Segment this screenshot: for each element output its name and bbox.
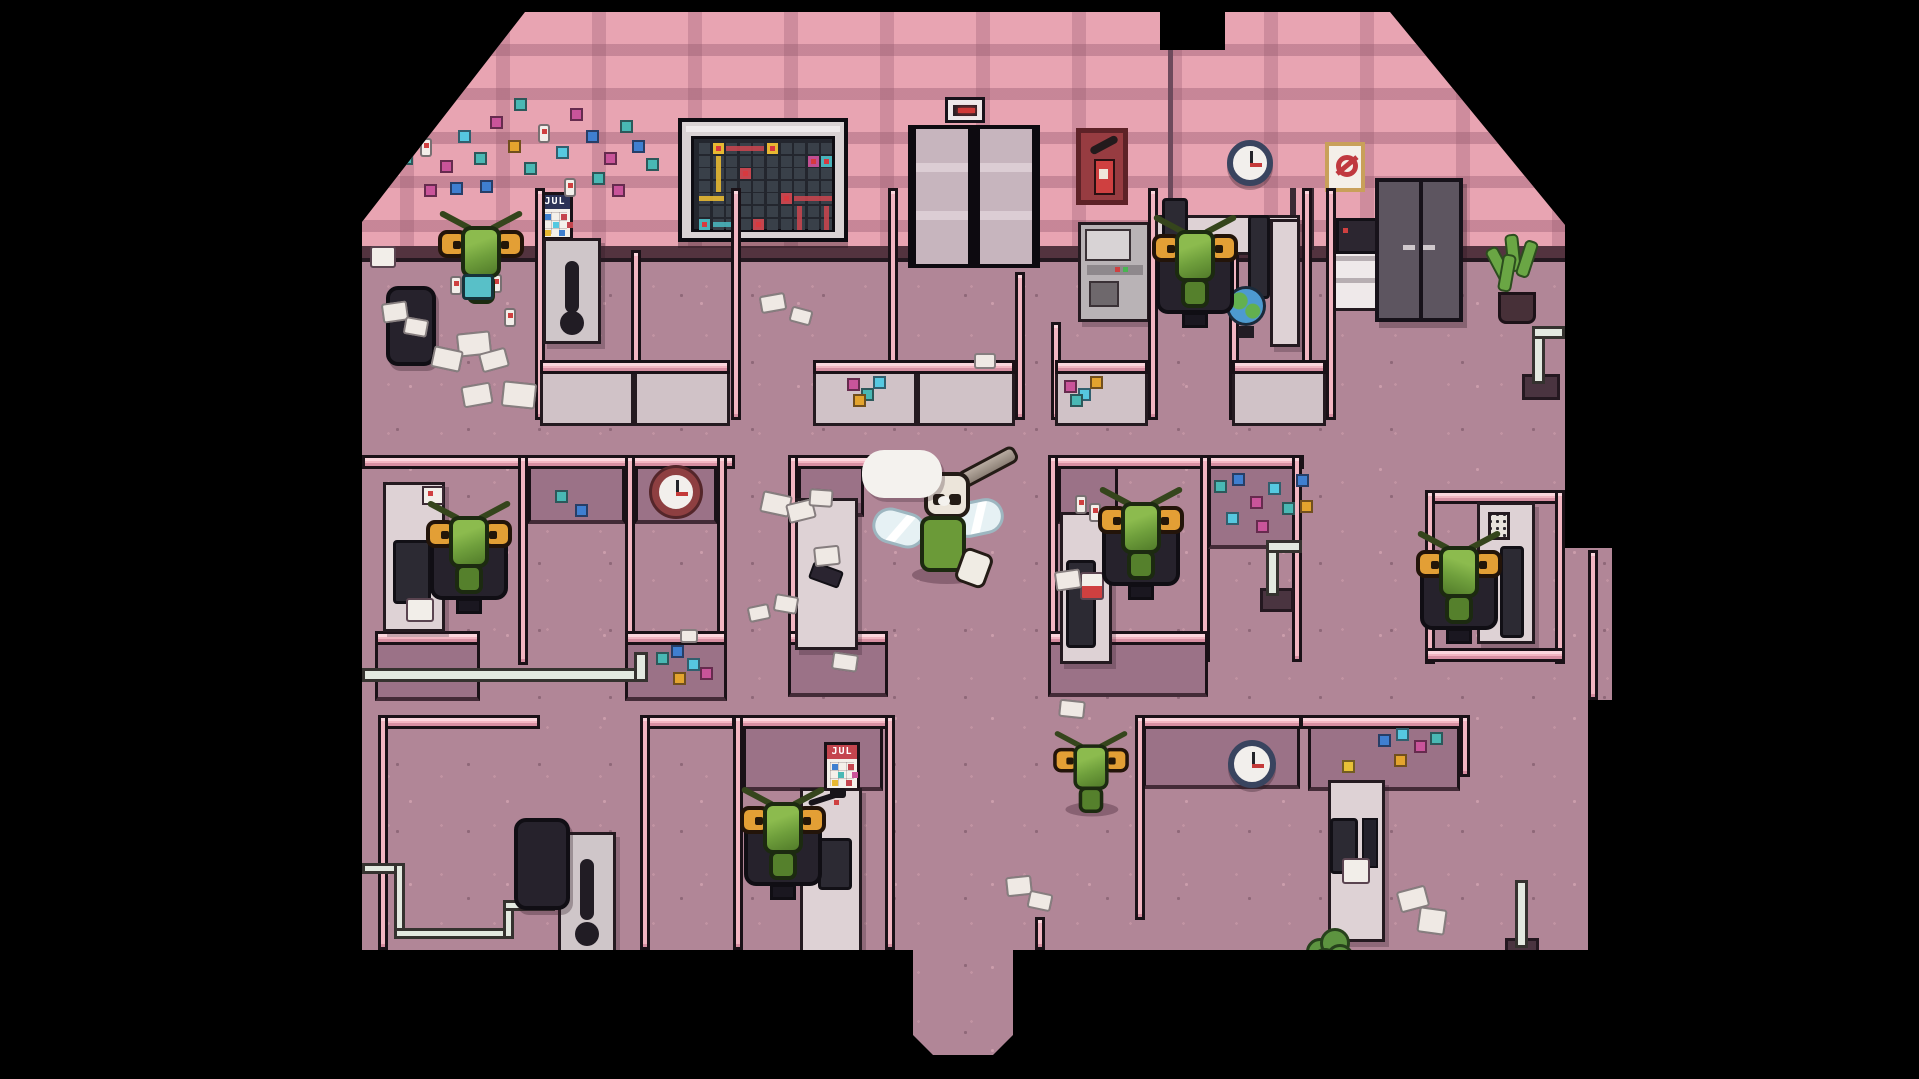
fly-worker[interactable] [426,504,512,600]
crumpled-paper [1054,568,1083,591]
sticky-note [612,184,625,197]
crumpled-paper [1058,699,1086,720]
copier-led-red [1115,267,1120,272]
task-board[interactable] [678,118,848,242]
desk-divider [914,374,920,426]
sticky-note [556,146,569,159]
fly-head [461,226,501,278]
board-marker [699,219,710,230]
board-cell [808,181,819,192]
sticky-note [853,394,866,407]
board-cell [821,168,832,179]
cubicle-desk-wall [1055,360,1148,374]
sticky-note [400,152,413,165]
sticky-note [1064,380,1077,393]
wall-clock-top [1227,140,1273,186]
floor-bush [1306,926,1350,972]
game-viewport: JUL [0,0,1919,1079]
sticky-note [1226,512,1239,525]
elevator[interactable] [908,125,1040,268]
board-cell [781,156,792,167]
sticky-note [632,140,645,153]
sticky-note [504,308,516,327]
sticky-note [1090,376,1103,389]
board-cell [767,168,778,179]
board-cell [713,206,724,217]
sticky-note [1430,732,1443,745]
board-cell [808,143,819,154]
floor-pipe-elbow [1266,540,1302,553]
crumpled-paper [831,651,859,672]
sticky-note [514,98,527,111]
board-cell [808,206,819,217]
board-path [726,146,764,151]
board-cell [794,156,805,167]
sticky-note [1214,480,1227,493]
wall-clock-bottom [1228,740,1276,788]
sticky-note [474,152,487,165]
board-cell [740,219,751,230]
copier-lid [1085,229,1131,261]
potted-plant [1486,232,1542,324]
cubicle-wall-face [1143,729,1300,789]
sticky-note [1300,500,1313,513]
sticky-note [575,504,588,517]
office-chair[interactable] [514,818,570,910]
elevator-door-left[interactable] [912,125,972,268]
sticky-note [440,160,453,173]
cubicle-wall [1135,715,1145,920]
cubicle-wall [1425,648,1565,662]
monitor [1500,546,1524,638]
board-cell [821,181,832,192]
cubicle-wall [640,715,650,950]
sticky-note [646,158,659,171]
sticky-note [700,667,713,680]
board-cell [767,193,778,204]
cubicle-wall-stub [1035,917,1045,950]
coffee-mug[interactable] [1342,858,1370,884]
floor-pipe [362,668,646,682]
board-cell [753,181,764,192]
board-cell [767,219,778,230]
sticky-note [1070,394,1083,407]
board-cell [753,168,764,179]
wall-clock-mid [652,468,700,516]
board-cell [794,181,805,192]
cubicle-wall [375,631,480,645]
plant-pot [1498,292,1536,324]
sticky-note [1342,760,1355,773]
cubicle-wall [1326,188,1336,420]
sticky-note [671,645,684,658]
board-cell [699,143,710,154]
cabinet-handle [1423,245,1435,250]
board-cell [794,168,805,179]
crumpled-paper [813,545,841,568]
board-cell [767,181,778,192]
fly-worker[interactable] [1098,490,1184,586]
no-smoking-sign [1325,142,1365,192]
fly-worker[interactable] [740,790,826,886]
board-cell [740,156,751,167]
fly-worker-walking[interactable] [1053,734,1129,818]
cabinet-seam [1419,182,1423,318]
board-cell [794,143,805,154]
sticky-note [420,138,432,157]
cubicle-wall [1135,715,1302,729]
calendar-mark [553,222,559,228]
cubicle-wall [378,715,388,950]
sticky-note [620,120,633,133]
sticky-note [555,490,568,503]
sticky-note [592,172,605,185]
sticky-note [424,184,437,197]
board-cell [753,156,764,167]
crumpled-paper [501,380,538,409]
calendar-month: JUL [827,745,857,759]
sticky-note [1268,482,1281,495]
board-cell [767,156,778,167]
calendar-mark [559,230,565,236]
board-cell [726,156,737,167]
board-cell [740,193,751,204]
board-marker [781,193,792,204]
calendar-mark [545,230,551,236]
fire-extinguisher-poster [1076,128,1128,205]
board-path [797,206,802,230]
sticky-note [1250,496,1263,509]
board-cell [781,181,792,192]
sticky-note [586,130,599,143]
sticky-note [490,116,503,129]
sticky-note [1232,473,1245,486]
sticky-note [604,152,617,165]
board-cell [699,181,710,192]
copier-tray [1089,281,1119,307]
calendar-mark [848,764,854,770]
sticky-note [458,130,471,143]
desk[interactable] [1270,219,1300,347]
board-cell [781,168,792,179]
sticky-note [524,162,537,175]
board-cell [808,219,819,230]
sticky-note [1256,520,1269,533]
drawer [1335,256,1375,261]
task-board-grid [691,136,835,232]
board-cell [740,206,751,217]
cubicle-wall [735,715,895,729]
cubicle-wall [1300,715,1462,729]
board-marker [767,143,778,154]
board-cell [726,168,737,179]
elevator-door-right[interactable] [976,125,1036,268]
water-cooler[interactable] [543,238,601,344]
sticky-note [508,140,521,153]
sticky-note [1282,502,1295,515]
teal-mug[interactable] [462,274,494,300]
board-cell [781,143,792,154]
coffee-mug[interactable] [406,598,434,622]
cubicle-wall [1015,272,1025,420]
extinguisher-hose [1089,134,1119,155]
sticky-note [873,376,886,389]
board-path [824,206,829,230]
floor-pipe-elbow [634,652,648,682]
cubicle-wall [1555,490,1565,664]
cubicle-wall [1460,715,1470,777]
sticky-note [1296,474,1309,487]
cubicle-desk-wall [540,360,730,374]
elevator-display-bar [958,108,975,113]
board-marker [740,168,751,179]
sticky-note [656,652,669,665]
copier-machine[interactable] [1078,222,1150,322]
sticky-note [847,378,860,391]
calendar-grid [543,212,567,234]
drawer [1335,278,1375,283]
paper-cup [370,246,396,268]
crumpled-paper [680,629,698,643]
board-cell [753,206,764,217]
crumpled-paper [1416,906,1447,936]
calendar-mark [846,780,852,786]
cubicle-wall [625,631,727,645]
minute-hand [1250,151,1253,163]
sticky-note [1075,495,1087,514]
board-path [699,196,724,201]
copier-led-green [1123,267,1128,272]
calendar-grid [830,762,854,786]
calendar-mark [832,764,838,770]
cubicle-desk-wall [1232,360,1326,374]
floor-pipe-elbow [1532,326,1565,339]
sticky-note [1394,754,1407,767]
calendar-mark [852,772,858,778]
sticky-note [564,178,576,197]
cubicle-wall-face [743,729,883,791]
board-cell [699,156,710,167]
wall-calendar-bottom: JUL [824,742,860,792]
board-marker [713,143,724,154]
board-marker [808,156,819,167]
cubicle-wall [1208,455,1304,469]
sticky-note [538,124,550,143]
crumpled-paper [773,593,800,615]
cubicle-wall [518,455,528,665]
hour-hand [1250,163,1262,167]
board-cell [781,219,792,230]
cubicle-wall [731,188,741,420]
floor-pipe [1515,880,1528,948]
sticky-note [570,108,583,121]
crumpled-paper [808,488,833,508]
crumpled-paper [403,316,430,338]
boundary-wall [1588,550,1598,700]
coffee-machine[interactable] [1336,218,1380,254]
sticky-note [450,182,463,195]
board-cell [699,168,710,179]
sticky-note [1414,740,1427,753]
board-cell [821,143,832,154]
board-marker [753,219,764,230]
floor-pipe [394,928,514,939]
elevator-indicator [945,97,985,123]
fly-worker[interactable] [1152,218,1238,314]
board-path [716,156,721,192]
board-cell [753,193,764,204]
calendar-mark [567,222,573,228]
metal-cabinet[interactable] [1375,178,1463,322]
extinguisher-body [1094,159,1115,195]
cubicle-wall [362,455,735,469]
coffee-station-cabinet[interactable] [1328,241,1382,311]
board-cell [767,206,778,217]
board-cell [699,206,710,217]
sticky-note [1378,734,1391,747]
board-cell [740,181,751,192]
cubicle-wall [885,715,895,950]
desk-divider [631,374,637,426]
calendar-mark [561,214,567,220]
sticky-note [687,658,700,671]
board-cell [781,206,792,217]
cubicle-wall [640,715,735,729]
board-marker [821,156,832,167]
sticky-note [1396,728,1409,741]
board-cell [808,168,819,179]
office-scene[interactable]: JUL [362,12,1612,1079]
sticky-note [673,672,686,685]
calendar-mark [832,780,838,786]
board-path [794,196,832,201]
sticky-note [480,180,493,193]
cubicle-desk[interactable] [1232,374,1326,426]
speech-bubble [862,450,942,498]
calendar-mark [838,772,844,778]
crumpled-paper [974,353,996,369]
sticky-note [396,110,408,129]
calendar-mark [545,214,551,220]
coffee-led [1343,228,1348,233]
cubicle-wall [378,715,540,729]
fly-worker[interactable] [1416,534,1502,630]
cabinet-handle [1403,245,1415,250]
cubicle-wall [1048,455,1208,469]
